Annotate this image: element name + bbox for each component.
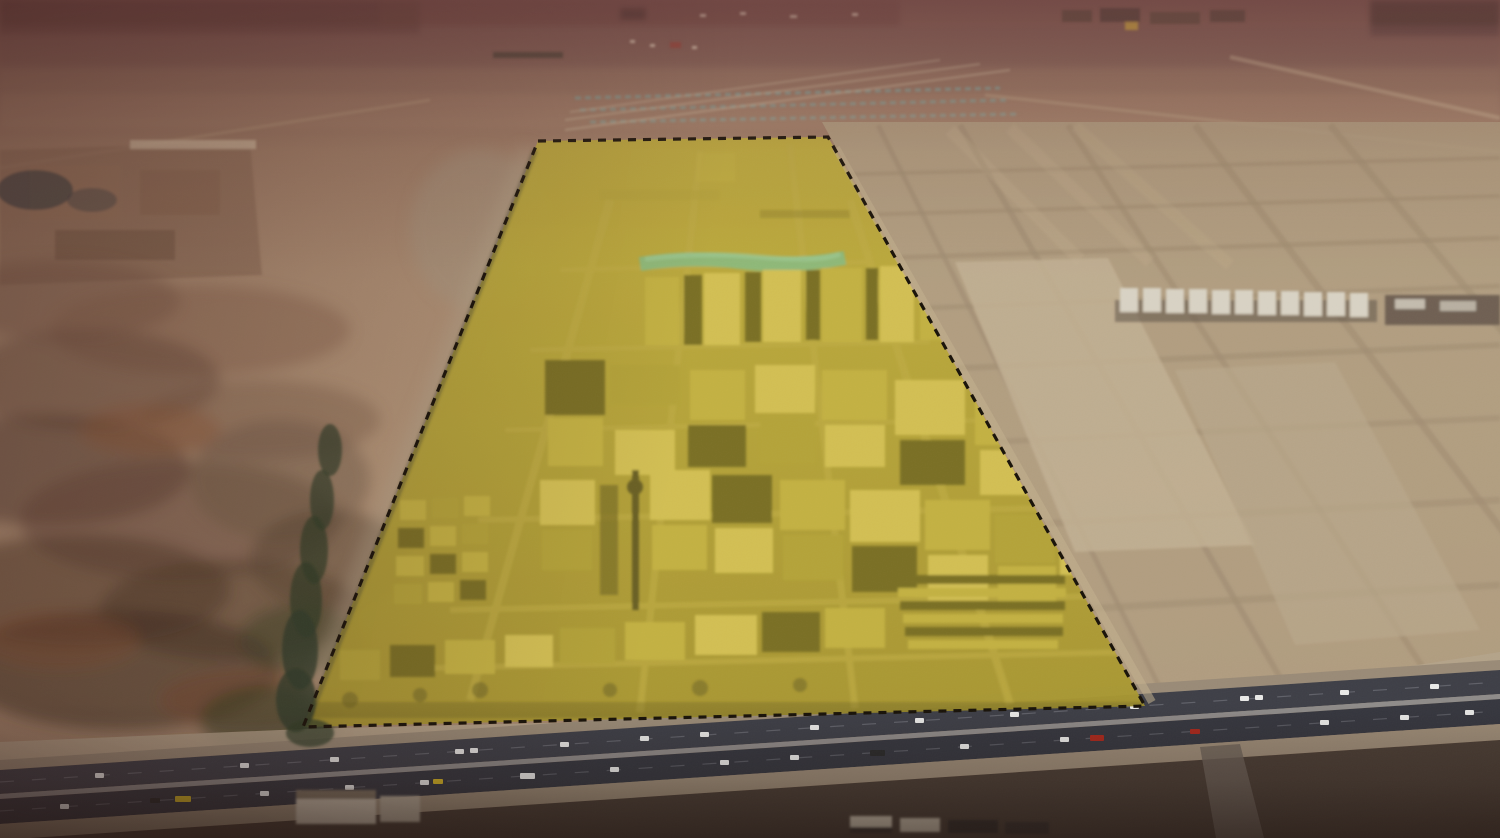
aerial-photo-canvas: [0, 0, 1500, 838]
film-grain: [0, 0, 1500, 838]
aerial-photo: [0, 0, 1500, 838]
